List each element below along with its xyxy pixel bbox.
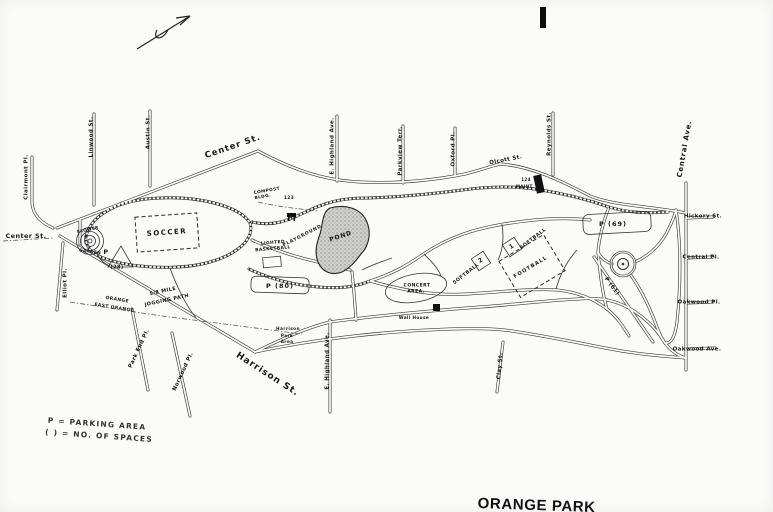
street-label-e-highland-ave-south: E. Highland Ave.: [325, 332, 331, 389]
map-title-partial: ORANGE PARK: [477, 495, 596, 512]
feature-label-wall-house: Wall House: [399, 316, 429, 320]
feature-label-harrison-park-1: Harrison: [276, 328, 300, 332]
street-label-e-highland-ave-north: E. Highland Ave.: [330, 117, 336, 174]
street-label-clairmont-pl: Clairmont Pl.: [24, 154, 30, 199]
traffic-circle: [611, 252, 635, 276]
basketball-court-outline: [263, 256, 282, 268]
street-label-oakwood-ave: Oakwood Ave.: [673, 347, 722, 353]
maintenance-building: [533, 174, 545, 193]
street-label-oxford-pl: Oxford Pl.: [451, 132, 457, 167]
pond-shape: [316, 207, 369, 274]
scanned-park-map: Center St. Center St. Clairmont Pl. Linw…: [0, 0, 773, 512]
street-label-parkview-terr: Parkview Terr.: [398, 126, 404, 175]
street-label-oakwood-pl: Oakwood Pl.: [678, 300, 721, 306]
wall-house-building: [433, 304, 440, 311]
scan-mark: [540, 7, 546, 28]
feature-label-maint-2: MAINT.: [516, 185, 534, 189]
feature-label-harrison-park-3: Area: [281, 341, 294, 345]
feature-label-harrison-park-2: Park: [281, 335, 294, 339]
street-label-austin-st: Austin St.: [146, 115, 152, 149]
north-arrow-icon: [137, 16, 190, 49]
feature-label-concert-1: CONCERT: [404, 285, 431, 290]
street-label-linwood-st: Linwood St.: [89, 117, 95, 158]
parking-label-p69: P (69): [599, 221, 627, 228]
jogging-path-hatch: [86, 187, 668, 288]
street-label-center-st-west: Center St.: [5, 233, 46, 240]
parking-label-p20: P: [103, 249, 108, 256]
feature-label-maint-1: 124: [521, 178, 531, 182]
street-label-reynolds-st: Reynolds St.: [547, 112, 553, 156]
road-inner: [32, 111, 715, 416]
parking-label-p80: P (80): [266, 283, 294, 290]
street-label-central-pl: Central Pl.: [683, 255, 720, 261]
feature-label-concert-2: AREA.: [407, 291, 425, 296]
parking-label-p20-count: (28): [110, 266, 123, 271]
feature-label-compost-number: 123: [284, 197, 294, 201]
street-label-hickory-st: Hickory St.: [684, 214, 722, 220]
street-label-elliot-pl: Elliot Pl.: [63, 268, 69, 298]
